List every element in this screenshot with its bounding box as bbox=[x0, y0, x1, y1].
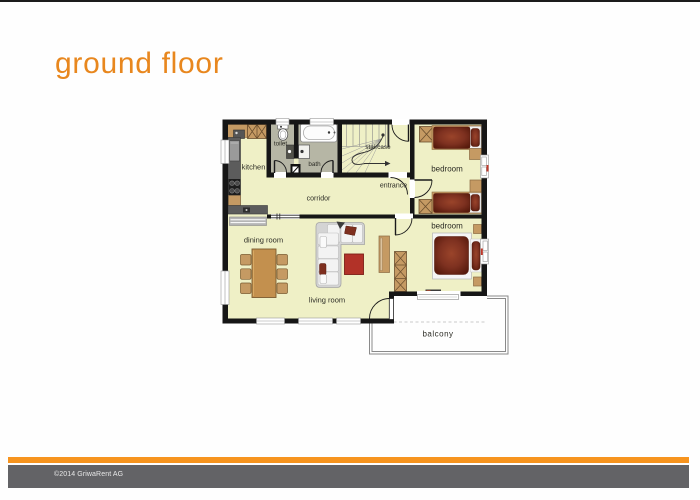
svg-text:bath: bath bbox=[308, 161, 321, 168]
svg-text:entrance: entrance bbox=[380, 182, 407, 189]
svg-text:staircase: staircase bbox=[365, 144, 391, 151]
svg-text:corridor: corridor bbox=[307, 196, 331, 203]
svg-text:bedroom: bedroom bbox=[431, 165, 463, 174]
svg-text:kitchen: kitchen bbox=[242, 163, 266, 172]
svg-text:living room: living room bbox=[309, 296, 345, 305]
svg-text:dining room: dining room bbox=[244, 236, 283, 245]
svg-text:balcony: balcony bbox=[422, 330, 453, 339]
svg-text:bedroom: bedroom bbox=[431, 222, 463, 231]
svg-text:toilet: toilet bbox=[274, 141, 288, 148]
